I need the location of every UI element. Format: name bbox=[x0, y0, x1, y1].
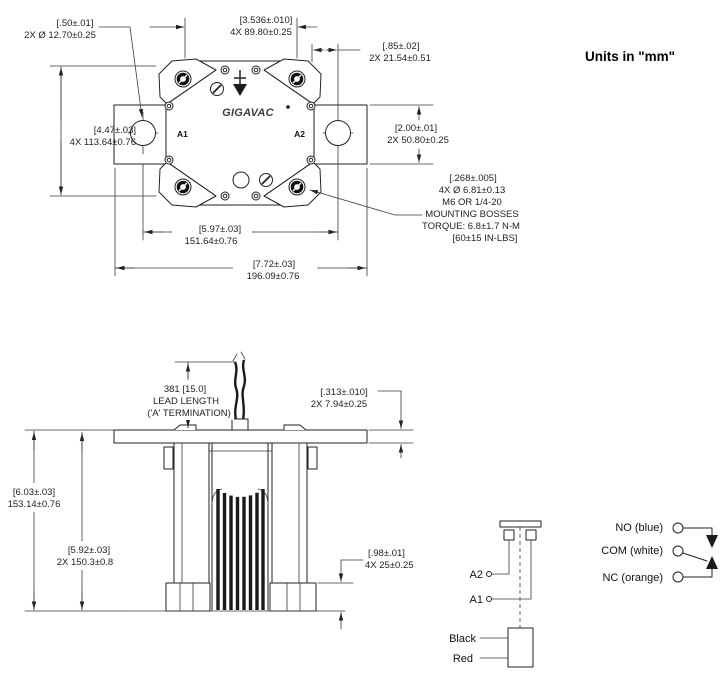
svg-text:('A' TERMINATION): ('A' TERMINATION) bbox=[147, 408, 231, 419]
svg-text:[.268±.005]: [.268±.005] bbox=[449, 173, 496, 184]
svg-text:[2.00±.01]: [2.00±.01] bbox=[395, 123, 437, 134]
svg-text:[5.97±.03]: [5.97±.03] bbox=[199, 224, 241, 235]
dim-lead-length: 381 [15.0] LEAD LENGTH ('A' TERMINATION) bbox=[142, 362, 235, 428]
aux-contact-schematic: NO (blue) COM (white) NC (orange) bbox=[601, 522, 718, 584]
dim-boss-height: [.98±.01] 4X 25±0.25 bbox=[318, 548, 414, 629]
svg-text:[6.03±.03]: [6.03±.03] bbox=[13, 487, 55, 498]
side-tab-right bbox=[308, 447, 317, 469]
mounting-foot-left bbox=[166, 583, 210, 611]
mounting-bosses-note: [.268±.005] 4X Ø 6.81±0.13 M6 OR 1/4-20 … bbox=[310, 173, 520, 244]
coil-a2-label: A2 bbox=[470, 569, 483, 581]
svg-text:151.64±0.76: 151.64±0.76 bbox=[185, 236, 238, 247]
coil-box bbox=[508, 628, 533, 667]
svg-text:2X 150.3±0.8: 2X 150.3±0.8 bbox=[57, 557, 113, 568]
dim-flange-thickness: [.313±.010] 2X 7.94±0.25 bbox=[311, 387, 413, 458]
slotted-screw-top bbox=[211, 83, 224, 96]
dim-edge-offset: [.85±.02] 2X 21.54±0.51 bbox=[312, 41, 431, 64]
svg-text:M6 OR 1/4-20: M6 OR 1/4-20 bbox=[442, 197, 502, 208]
dim-screw-spacing: [3.536±.010] 4X 89.80±0.25 bbox=[150, 15, 317, 58]
dim-body-height: [5.92±.03] 2X 150.3±0.8 bbox=[46, 432, 120, 610]
drawing-sheet: GIGAVAC A1 A2 [.50±.01] 2X Ø 12.70±0.25 … bbox=[0, 0, 724, 676]
svg-text:4X Ø 6.81±0.13: 4X Ø 6.81±0.13 bbox=[439, 185, 505, 196]
svg-text:[4.47±.03]: [4.47±.03] bbox=[94, 125, 136, 136]
bracket-hole-right bbox=[326, 121, 351, 146]
side-view: [6.03±.03] 153.14±0.76 [5.92±.03] 2X 150… bbox=[0, 352, 414, 629]
svg-text:[.50±.01]: [.50±.01] bbox=[57, 18, 94, 29]
dim-bar-width: [2.00±.01] 2X 50.80±0.25 bbox=[370, 105, 449, 164]
terminal-a2-label: A2 bbox=[294, 129, 305, 139]
svg-text:4X 113.64±0.76: 4X 113.64±0.76 bbox=[70, 137, 136, 148]
schematic-flange bbox=[500, 521, 541, 527]
dim-hole-diameter: [.50±.01] 2X Ø 12.70±0.25 bbox=[24, 18, 142, 117]
schematic-terminal-right bbox=[526, 530, 536, 540]
svg-text:[5.92±.03]: [5.92±.03] bbox=[68, 545, 110, 556]
svg-text:2X 50.80±0.25: 2X 50.80±0.25 bbox=[387, 135, 449, 146]
units-note: Units in "mm" bbox=[585, 49, 675, 64]
aux-nc-arrow-icon bbox=[706, 556, 718, 569]
bushing-right bbox=[272, 443, 307, 583]
dim-overall-height: [6.03±.03] 153.14±0.76 bbox=[0, 431, 70, 610]
aux-com-label: COM (white) bbox=[601, 545, 663, 557]
wire-terminal-block bbox=[232, 419, 248, 430]
coil-black-label: Black bbox=[449, 633, 476, 645]
svg-text:2X Ø 12.70±0.25: 2X Ø 12.70±0.25 bbox=[24, 30, 96, 41]
svg-text:MOUNTING BOSSES: MOUNTING BOSSES bbox=[425, 209, 518, 220]
svg-text:[.85±.02]: [.85±.02] bbox=[383, 41, 420, 52]
mounting-foot-right bbox=[270, 583, 316, 611]
side-tab-left bbox=[164, 447, 173, 469]
vent-hole bbox=[233, 172, 249, 188]
dim-hole-span: [5.97±.03] 151.64±0.76 bbox=[143, 221, 338, 247]
bushing-left bbox=[174, 443, 209, 583]
svg-text:[3.536±.010]: [3.536±.010] bbox=[240, 15, 293, 26]
ribbed-core bbox=[212, 443, 268, 610]
svg-text:4X 89.80±0.25: 4X 89.80±0.25 bbox=[230, 27, 292, 38]
svg-text:153.14±0.76: 153.14±0.76 bbox=[8, 499, 61, 510]
schematic-terminal-left bbox=[504, 530, 514, 540]
flange-plate bbox=[114, 430, 367, 443]
svg-text:196.09±0.76: 196.09±0.76 bbox=[247, 271, 300, 282]
top-view: GIGAVAC A1 A2 [.50±.01] 2X Ø 12.70±0.25 … bbox=[24, 15, 520, 283]
aux-nc-label: NC (orange) bbox=[602, 572, 663, 584]
registered-mark-dot bbox=[286, 105, 290, 109]
coil-schematic: A2 A1 Black Red bbox=[449, 521, 541, 667]
svg-text:LEAD LENGTH: LEAD LENGTH bbox=[153, 396, 219, 407]
svg-text:[.313±.010]: [.313±.010] bbox=[320, 387, 367, 398]
svg-text:2X 21.54±0.51: 2X 21.54±0.51 bbox=[369, 53, 431, 64]
svg-text:[7.72±.03]: [7.72±.03] bbox=[253, 259, 295, 270]
brand-logo: GIGAVAC bbox=[222, 107, 275, 119]
svg-text:TORQUE: 6.8±1.7 N-M: TORQUE: 6.8±1.7 N-M bbox=[422, 221, 520, 232]
technical-drawing: GIGAVAC A1 A2 [.50±.01] 2X Ø 12.70±0.25 … bbox=[0, 0, 724, 676]
svg-text:381 [15.0]: 381 [15.0] bbox=[164, 384, 206, 395]
svg-text:[60±15 IN-LBS]: [60±15 IN-LBS] bbox=[453, 233, 518, 244]
coil-red-label: Red bbox=[453, 653, 473, 665]
svg-text:2X 7.94±0.25: 2X 7.94±0.25 bbox=[311, 399, 367, 410]
aux-no-arrow-icon bbox=[706, 535, 718, 548]
coil-a1-label: A1 bbox=[470, 594, 483, 606]
aux-no-label: NO (blue) bbox=[615, 522, 663, 534]
svg-text:4X 25±0.25: 4X 25±0.25 bbox=[365, 560, 414, 571]
terminal-a1-label: A1 bbox=[177, 129, 188, 139]
svg-text:[.98±.01]: [.98±.01] bbox=[368, 548, 405, 559]
slotted-screw-bottom bbox=[260, 174, 273, 187]
